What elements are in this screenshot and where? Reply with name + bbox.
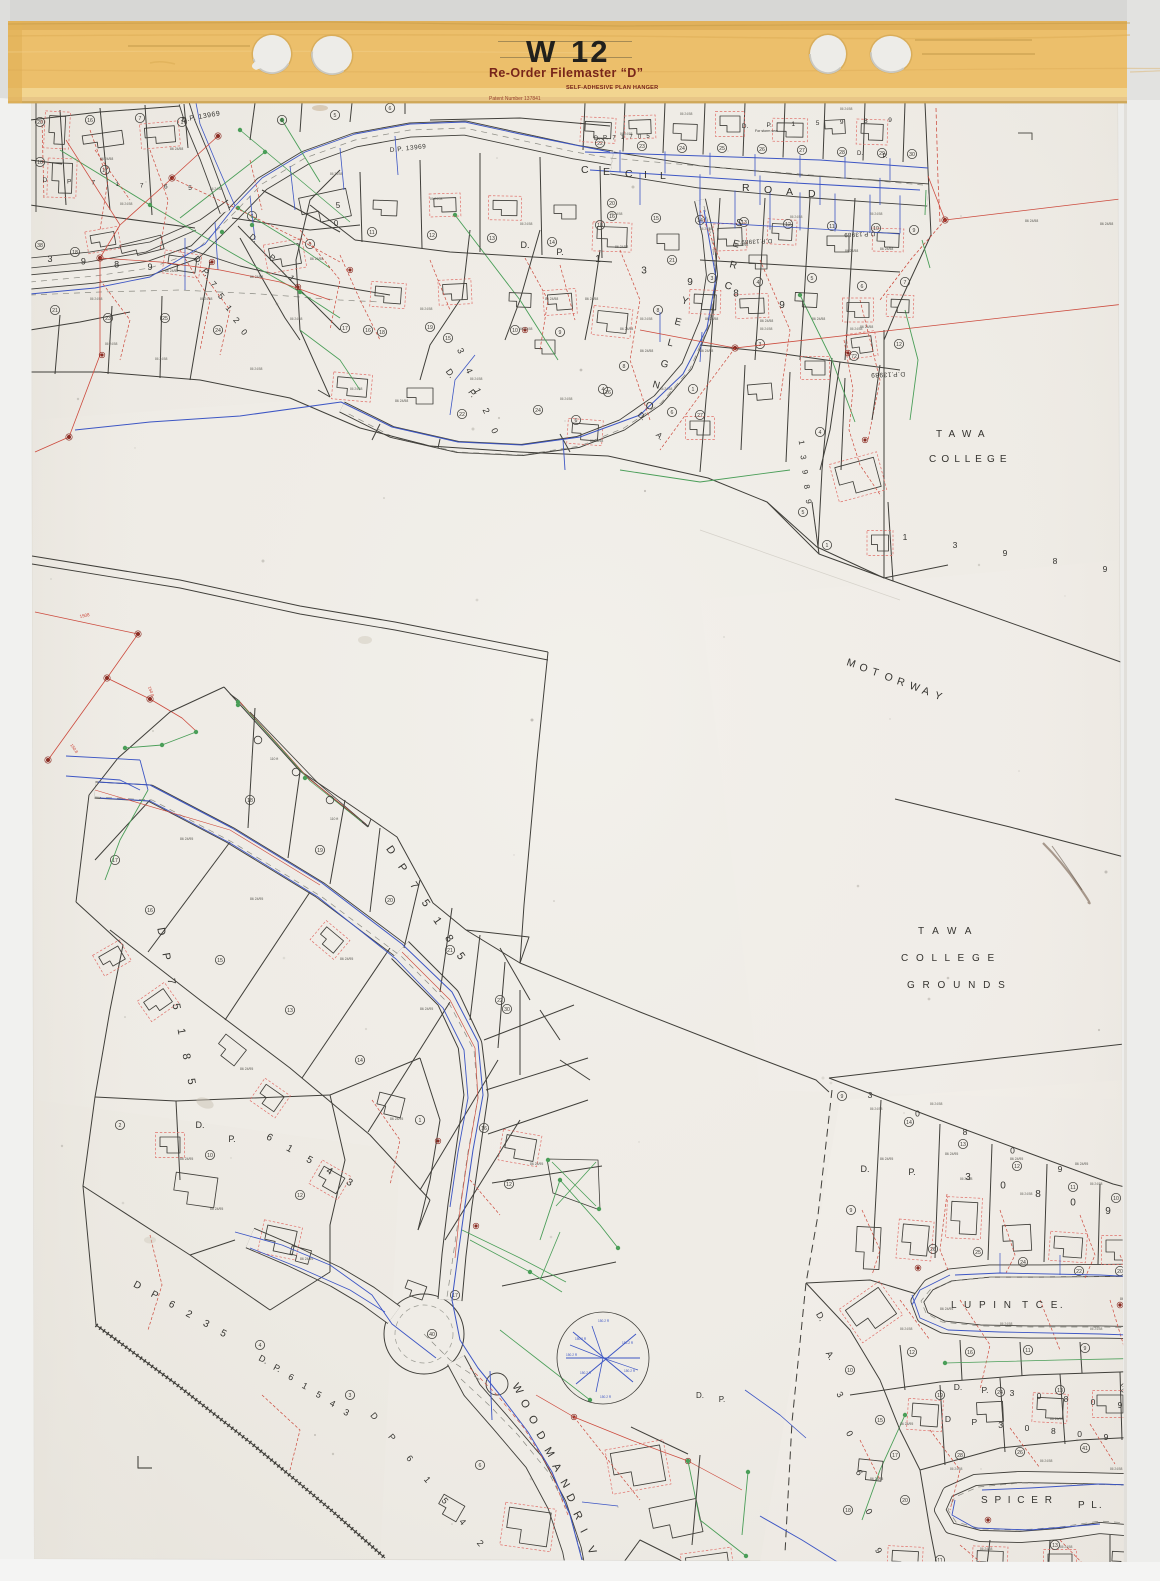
svg-text:86 24/95: 86 24/95 xyxy=(870,1477,883,1481)
svg-text:86 24/58: 86 24/58 xyxy=(100,157,113,161)
svg-text:12: 12 xyxy=(909,1350,915,1356)
svg-text:7: 7 xyxy=(140,182,144,189)
svg-text:86 24/58: 86 24/58 xyxy=(1040,1459,1053,1463)
svg-text:30: 30 xyxy=(909,152,915,158)
svg-text:A: A xyxy=(786,186,793,198)
svg-text:0: 0 xyxy=(915,1109,920,1119)
svg-text:8: 8 xyxy=(114,259,119,269)
svg-text:28: 28 xyxy=(957,1453,963,1459)
svg-text:9: 9 xyxy=(1103,564,1108,574)
svg-text:9: 9 xyxy=(1105,1206,1111,1217)
svg-text:150.2 R: 150.2 R xyxy=(566,1353,578,1357)
svg-text:13: 13 xyxy=(960,1142,966,1148)
svg-text:20: 20 xyxy=(609,201,615,207)
svg-text:18: 18 xyxy=(845,1508,851,1514)
svg-text:I: I xyxy=(644,169,647,181)
svg-text:38: 38 xyxy=(37,243,43,249)
svg-text:P.: P. xyxy=(556,247,563,257)
svg-text:86 24/58: 86 24/58 xyxy=(105,342,118,346)
svg-text:86 24/58: 86 24/58 xyxy=(900,1327,913,1331)
svg-text:T A W A: T A W A xyxy=(918,926,974,937)
svg-text:86 24/58: 86 24/58 xyxy=(1000,1322,1013,1326)
svg-text:86 24/58: 86 24/58 xyxy=(850,327,863,331)
svg-text:86 24/95: 86 24/95 xyxy=(340,957,353,961)
svg-text:86 24/58: 86 24/58 xyxy=(520,327,533,331)
svg-text:21: 21 xyxy=(52,308,58,314)
svg-text:P.: P. xyxy=(908,1167,915,1177)
svg-text:13: 13 xyxy=(1057,1388,1063,1394)
svg-text:86 24/58: 86 24/58 xyxy=(620,327,633,331)
svg-text:12: 12 xyxy=(506,1182,512,1188)
svg-text:18: 18 xyxy=(72,250,78,256)
svg-text:16: 16 xyxy=(481,1126,487,1132)
svg-text:6: 6 xyxy=(389,106,392,112)
svg-text:12: 12 xyxy=(297,1193,303,1199)
svg-text:2: 2 xyxy=(119,1123,122,1129)
svg-text:19: 19 xyxy=(427,325,433,331)
svg-text:86 24/58: 86 24/58 xyxy=(1090,1182,1103,1186)
svg-text:10: 10 xyxy=(207,1153,213,1159)
svg-text:9: 9 xyxy=(1104,1432,1109,1442)
svg-text:1: 1 xyxy=(419,1118,422,1124)
svg-text:86 24/58: 86 24/58 xyxy=(760,319,773,323)
svg-text:86 24/58: 86 24/58 xyxy=(705,317,718,321)
svg-text:15: 15 xyxy=(653,216,659,222)
svg-text:18: 18 xyxy=(247,798,253,804)
svg-text:5: 5 xyxy=(802,510,805,516)
svg-text:25: 25 xyxy=(975,1250,981,1256)
svg-text:E: E xyxy=(603,166,610,178)
svg-text:9: 9 xyxy=(1003,548,1008,558)
svg-text:86 24/95: 86 24/95 xyxy=(1075,1162,1088,1166)
svg-text:1: 1 xyxy=(116,181,120,188)
svg-text:P L.: P L. xyxy=(1078,1500,1104,1511)
svg-text:86 24/58: 86 24/58 xyxy=(1100,222,1113,226)
svg-text:1: 1 xyxy=(692,387,695,393)
svg-text:8: 8 xyxy=(864,118,868,125)
svg-text:86 24/58: 86 24/58 xyxy=(1110,1467,1123,1471)
svg-text:23: 23 xyxy=(639,144,645,150)
svg-text:17: 17 xyxy=(892,1453,898,1459)
svg-text:86 24/58: 86 24/58 xyxy=(250,367,263,371)
svg-text:D.: D. xyxy=(954,1382,963,1392)
svg-text:86 24/58: 86 24/58 xyxy=(395,399,408,403)
svg-text:20: 20 xyxy=(37,120,43,126)
svg-text:86 24/58: 86 24/58 xyxy=(545,297,558,301)
svg-text:86 24/58: 86 24/58 xyxy=(870,1107,883,1111)
svg-text:25: 25 xyxy=(719,146,725,152)
svg-text:86 24/58: 86 24/58 xyxy=(610,212,623,216)
svg-text:4: 4 xyxy=(259,1343,262,1349)
svg-text:D.: D. xyxy=(857,151,863,157)
svg-text:86 24/58: 86 24/58 xyxy=(165,269,178,273)
svg-text:22: 22 xyxy=(497,998,503,1004)
svg-text:14: 14 xyxy=(357,1058,363,1064)
svg-text:86 24/58: 86 24/58 xyxy=(90,297,103,301)
svg-text:9: 9 xyxy=(888,117,892,124)
svg-text:P.: P. xyxy=(603,136,608,142)
svg-text:3: 3 xyxy=(868,1090,873,1100)
svg-text:86 24/58: 86 24/58 xyxy=(560,397,573,401)
svg-text:9: 9 xyxy=(840,119,844,126)
svg-text:1: 1 xyxy=(903,532,908,542)
svg-text:17: 17 xyxy=(342,326,348,332)
svg-text:86 24/58: 86 24/58 xyxy=(1090,1327,1103,1331)
svg-text:4: 4 xyxy=(819,430,822,436)
svg-text:8: 8 xyxy=(733,289,739,300)
svg-text:86 24/95: 86 24/95 xyxy=(1010,1157,1023,1161)
svg-text:5: 5 xyxy=(188,185,192,192)
svg-text:D.P.13989: D.P.13989 xyxy=(844,230,876,237)
svg-text:86 24/58: 86 24/58 xyxy=(1060,1545,1073,1549)
svg-text:0: 0 xyxy=(334,219,339,228)
svg-text:3: 3 xyxy=(641,266,647,277)
svg-text:3: 3 xyxy=(349,1393,352,1399)
svg-text:13: 13 xyxy=(489,236,495,242)
svg-text:S P I C E R: S P I C E R xyxy=(981,1495,1054,1506)
svg-text:13: 13 xyxy=(1052,1543,1058,1549)
svg-text:D.P.13989: D.P.13989 xyxy=(871,370,906,378)
svg-text:0: 0 xyxy=(1037,1391,1042,1401)
svg-text:L: L xyxy=(660,170,666,182)
svg-text:9: 9 xyxy=(687,277,693,288)
svg-text:16: 16 xyxy=(147,908,153,914)
svg-text:27: 27 xyxy=(799,148,805,154)
svg-text:9: 9 xyxy=(1118,1400,1123,1410)
svg-text:6: 6 xyxy=(281,118,284,124)
svg-text:86 24/58: 86 24/58 xyxy=(520,222,533,226)
svg-text:3: 3 xyxy=(1010,1388,1015,1398)
svg-text:10: 10 xyxy=(847,1368,853,1374)
svg-text:7: 7 xyxy=(92,180,96,187)
svg-text:14: 14 xyxy=(549,240,555,246)
svg-text:86 24/58: 86 24/58 xyxy=(210,187,223,191)
svg-text:20: 20 xyxy=(902,1498,908,1504)
svg-text:21: 21 xyxy=(669,258,675,264)
svg-text:86 24/58: 86 24/58 xyxy=(310,257,323,261)
svg-text:R: R xyxy=(742,182,750,194)
svg-text:16: 16 xyxy=(967,1350,973,1356)
svg-text:12: 12 xyxy=(1014,1164,1020,1170)
svg-text:6: 6 xyxy=(575,418,578,424)
svg-text:23: 23 xyxy=(105,316,111,322)
svg-text:P.: P. xyxy=(982,1385,989,1395)
svg-text:15: 15 xyxy=(877,1418,883,1424)
svg-text:86 24/58: 86 24/58 xyxy=(1025,219,1038,223)
svg-text:13: 13 xyxy=(287,1008,293,1014)
svg-text:3: 3 xyxy=(953,540,958,550)
svg-text:P.: P. xyxy=(228,1134,235,1144)
svg-text:86 24/58: 86 24/58 xyxy=(430,197,443,201)
svg-text:86 24/58: 86 24/58 xyxy=(640,349,653,353)
svg-text:16: 16 xyxy=(365,328,371,334)
svg-text:9: 9 xyxy=(1058,1164,1063,1174)
svg-text:150.2 R: 150.2 R xyxy=(575,1337,587,1341)
svg-text:D.: D. xyxy=(521,240,530,250)
svg-text:5: 5 xyxy=(811,276,814,282)
svg-text:10: 10 xyxy=(37,160,43,166)
svg-text:P.: P. xyxy=(883,154,888,160)
svg-text:4: 4 xyxy=(757,280,760,286)
svg-text:150.2 R: 150.2 R xyxy=(622,1341,634,1345)
svg-text:19: 19 xyxy=(937,1393,943,1399)
svg-text:86 24/58: 86 24/58 xyxy=(760,327,773,331)
svg-text:D.: D. xyxy=(594,136,600,142)
svg-text:9: 9 xyxy=(850,1208,853,1214)
svg-text:11: 11 xyxy=(1070,1185,1075,1191)
svg-text:D.: D. xyxy=(696,1391,704,1400)
svg-text:86 24/58: 86 24/58 xyxy=(960,1177,973,1181)
svg-text:86 24/95: 86 24/95 xyxy=(1050,1417,1063,1421)
svg-text:8: 8 xyxy=(1064,1394,1069,1404)
svg-text:W: W xyxy=(526,34,556,69)
svg-text:9: 9 xyxy=(147,262,152,272)
svg-text:12: 12 xyxy=(429,233,435,239)
svg-text:86 24/95: 86 24/95 xyxy=(420,1007,433,1011)
svg-text:110 ft: 110 ft xyxy=(330,817,338,821)
svg-text:D: D xyxy=(945,1414,951,1424)
svg-text:D.: D. xyxy=(861,1164,870,1174)
svg-text:86 24/58: 86 24/58 xyxy=(120,202,133,206)
svg-text:18: 18 xyxy=(379,330,385,336)
svg-text:D: D xyxy=(808,188,816,200)
svg-text:C: C xyxy=(625,168,633,180)
svg-text:3: 3 xyxy=(998,1420,1003,1430)
svg-text:11: 11 xyxy=(369,230,374,236)
svg-text:For storm sew: For storm sew xyxy=(755,129,778,133)
svg-text:1: 1 xyxy=(595,254,601,265)
svg-text:5: 5 xyxy=(816,120,820,127)
svg-text:28: 28 xyxy=(839,150,845,156)
svg-text:86 24/58: 86 24/58 xyxy=(615,245,628,249)
svg-text:150.2 R: 150.2 R xyxy=(580,1371,592,1375)
svg-text:24: 24 xyxy=(215,328,221,334)
svg-text:12: 12 xyxy=(896,342,902,348)
svg-text:86 24/58: 86 24/58 xyxy=(880,247,893,251)
svg-text:26: 26 xyxy=(1017,1450,1023,1456)
svg-text:C O L L E G E: C O L L E G E xyxy=(901,953,997,964)
svg-text:24: 24 xyxy=(997,1390,1003,1396)
svg-text:3: 3 xyxy=(47,254,52,264)
svg-text:20: 20 xyxy=(387,898,393,904)
svg-text:11: 11 xyxy=(829,224,834,230)
svg-text:22: 22 xyxy=(459,412,465,418)
svg-text:86 24/58: 86 24/58 xyxy=(290,317,303,321)
svg-text:19: 19 xyxy=(317,848,323,854)
svg-text:8: 8 xyxy=(1035,1189,1041,1200)
svg-text:72: 72 xyxy=(851,354,857,360)
svg-text:0: 0 xyxy=(1091,1397,1096,1407)
svg-text:3: 3 xyxy=(711,276,714,282)
svg-text:SELF-ADHESIVE PLAN HANGER: SELF-ADHESIVE PLAN HANGER xyxy=(566,85,658,91)
svg-text:Re-Order Filemaster “D”: Re-Order Filemaster “D” xyxy=(489,66,643,80)
svg-text:86 24/58: 86 24/58 xyxy=(620,132,633,136)
svg-text:86 24/58: 86 24/58 xyxy=(950,1467,963,1471)
svg-text:Patent Number 137841: Patent Number 137841 xyxy=(489,96,541,102)
svg-text:5: 5 xyxy=(336,201,341,210)
svg-text:6: 6 xyxy=(861,284,864,290)
svg-text:D.: D. xyxy=(742,123,749,130)
svg-text:86 24/95: 86 24/95 xyxy=(945,1152,958,1156)
svg-text:9: 9 xyxy=(81,257,86,267)
svg-text:86 24/58: 86 24/58 xyxy=(250,275,263,279)
svg-text:86 24/95: 86 24/95 xyxy=(940,1307,953,1311)
svg-text:86 24/58: 86 24/58 xyxy=(350,387,363,391)
svg-text:86 24/58: 86 24/58 xyxy=(812,317,825,321)
svg-text:26: 26 xyxy=(605,390,611,396)
svg-text:18: 18 xyxy=(597,223,603,229)
svg-text:86 24/95: 86 24/95 xyxy=(900,1422,913,1426)
svg-text:86 24/58: 86 24/58 xyxy=(845,249,858,253)
svg-text:12: 12 xyxy=(571,34,609,69)
svg-text:0: 0 xyxy=(1010,1146,1015,1156)
svg-text:86 24/58: 86 24/58 xyxy=(700,349,713,353)
svg-text:7: 7 xyxy=(904,280,907,286)
svg-text:24: 24 xyxy=(535,408,541,414)
svg-text:0: 0 xyxy=(1000,1181,1006,1192)
svg-text:9: 9 xyxy=(1084,1346,1087,1352)
svg-text:86 24/95: 86 24/95 xyxy=(210,1207,223,1211)
svg-text:22: 22 xyxy=(1076,1269,1082,1275)
svg-text:9: 9 xyxy=(913,228,916,234)
svg-text:6: 6 xyxy=(479,1463,482,1469)
svg-text:8: 8 xyxy=(963,1127,968,1137)
svg-text:6: 6 xyxy=(671,410,674,416)
svg-text:86 24/58: 86 24/58 xyxy=(170,147,183,151)
svg-text:15: 15 xyxy=(217,958,223,964)
svg-text:0: 0 xyxy=(1077,1429,1082,1439)
svg-text:8: 8 xyxy=(657,308,660,314)
svg-text:L U P I N: L U P I N xyxy=(951,1300,1014,1311)
svg-text:T A W A: T A W A xyxy=(936,429,987,440)
svg-text:8: 8 xyxy=(1051,1426,1056,1436)
svg-text:25: 25 xyxy=(162,316,168,322)
svg-text:T C E.: T C E. xyxy=(1022,1300,1065,1311)
svg-text:150.2 R: 150.2 R xyxy=(600,1395,612,1399)
svg-text:86 24/95: 86 24/95 xyxy=(880,1157,893,1161)
svg-text:P: P xyxy=(67,178,71,185)
svg-text:86 24/58: 86 24/58 xyxy=(585,297,598,301)
svg-text:30: 30 xyxy=(504,1007,510,1013)
svg-text:24: 24 xyxy=(679,146,685,152)
svg-text:P.: P. xyxy=(767,122,772,129)
svg-text:1: 1 xyxy=(792,121,796,128)
svg-text:86 24/58: 86 24/58 xyxy=(735,243,748,247)
svg-text:86 24/58: 86 24/58 xyxy=(680,112,693,116)
svg-text:150.2 R: 150.2 R xyxy=(598,1319,610,1323)
svg-text:86 24/58: 86 24/58 xyxy=(330,172,343,176)
svg-text:86 24/58: 86 24/58 xyxy=(840,107,853,111)
svg-text:86 24/58: 86 24/58 xyxy=(930,1102,943,1106)
svg-text:86 24/58: 86 24/58 xyxy=(590,439,603,443)
svg-text:17: 17 xyxy=(102,168,108,174)
svg-text:27: 27 xyxy=(697,413,703,419)
svg-text:86 24/58: 86 24/58 xyxy=(1020,1192,1033,1196)
svg-text:86 24/58: 86 24/58 xyxy=(870,212,883,216)
svg-text:40: 40 xyxy=(429,1332,435,1338)
svg-text:10: 10 xyxy=(512,328,518,334)
svg-text:26: 26 xyxy=(930,1247,936,1253)
svg-text:86 24/58: 86 24/58 xyxy=(200,297,213,301)
svg-text:86 24/58: 86 24/58 xyxy=(640,317,653,321)
svg-text:110 ft: 110 ft xyxy=(270,757,278,761)
svg-text:86 24/58: 86 24/58 xyxy=(980,1547,993,1551)
svg-text:24: 24 xyxy=(1020,1260,1026,1266)
svg-text:150.2 R: 150.2 R xyxy=(624,1369,636,1373)
svg-text:15: 15 xyxy=(445,336,451,342)
svg-text:86 24/58: 86 24/58 xyxy=(420,307,433,311)
svg-text:21: 21 xyxy=(447,948,453,954)
svg-text:D: D xyxy=(43,177,48,184)
svg-text:86 24/95: 86 24/95 xyxy=(240,1067,253,1071)
svg-text:1: 1 xyxy=(826,543,829,549)
svg-text:86 24/95: 86 24/95 xyxy=(530,1162,543,1166)
svg-text:D.: D. xyxy=(196,1120,205,1130)
svg-text:86 24/95: 86 24/95 xyxy=(390,1117,403,1121)
svg-text:P: P xyxy=(971,1417,977,1427)
svg-text:20: 20 xyxy=(1117,1269,1123,1275)
svg-text:C O L L E G E: C O L L E G E xyxy=(929,454,1008,465)
svg-text:5: 5 xyxy=(334,113,337,119)
svg-text:7: 7 xyxy=(139,116,142,122)
svg-text:86 24/58: 86 24/58 xyxy=(700,227,713,231)
svg-text:86 24/58: 86 24/58 xyxy=(660,387,673,391)
svg-text:10: 10 xyxy=(1113,1196,1119,1202)
svg-text:C: C xyxy=(581,164,589,176)
svg-text:86 24/95: 86 24/95 xyxy=(180,837,193,841)
svg-text:26: 26 xyxy=(759,147,765,153)
svg-text:8: 8 xyxy=(1053,556,1058,566)
svg-text:41: 41 xyxy=(1082,1446,1088,1452)
svg-text:86 24/58: 86 24/58 xyxy=(470,377,483,381)
svg-text:86 24/95: 86 24/95 xyxy=(250,897,263,901)
svg-text:O: O xyxy=(764,184,772,196)
svg-text:9: 9 xyxy=(841,1094,844,1100)
svg-text:11: 11 xyxy=(1025,1348,1030,1354)
svg-text:G R O U N D S: G R O U N D S xyxy=(907,980,1007,991)
svg-text:86 24/95: 86 24/95 xyxy=(180,1157,193,1161)
svg-text:8: 8 xyxy=(623,364,626,370)
svg-text:6: 6 xyxy=(164,184,168,191)
svg-text:16: 16 xyxy=(87,118,93,124)
svg-text:0: 0 xyxy=(1025,1423,1030,1433)
svg-text:86 24/58: 86 24/58 xyxy=(155,357,168,361)
svg-text:9: 9 xyxy=(559,330,562,336)
svg-text:86 24/58: 86 24/58 xyxy=(790,215,803,219)
svg-text:P.: P. xyxy=(719,1395,726,1404)
svg-text:0: 0 xyxy=(1070,1198,1076,1209)
svg-text:14: 14 xyxy=(906,1120,912,1126)
svg-text:9: 9 xyxy=(779,300,785,311)
